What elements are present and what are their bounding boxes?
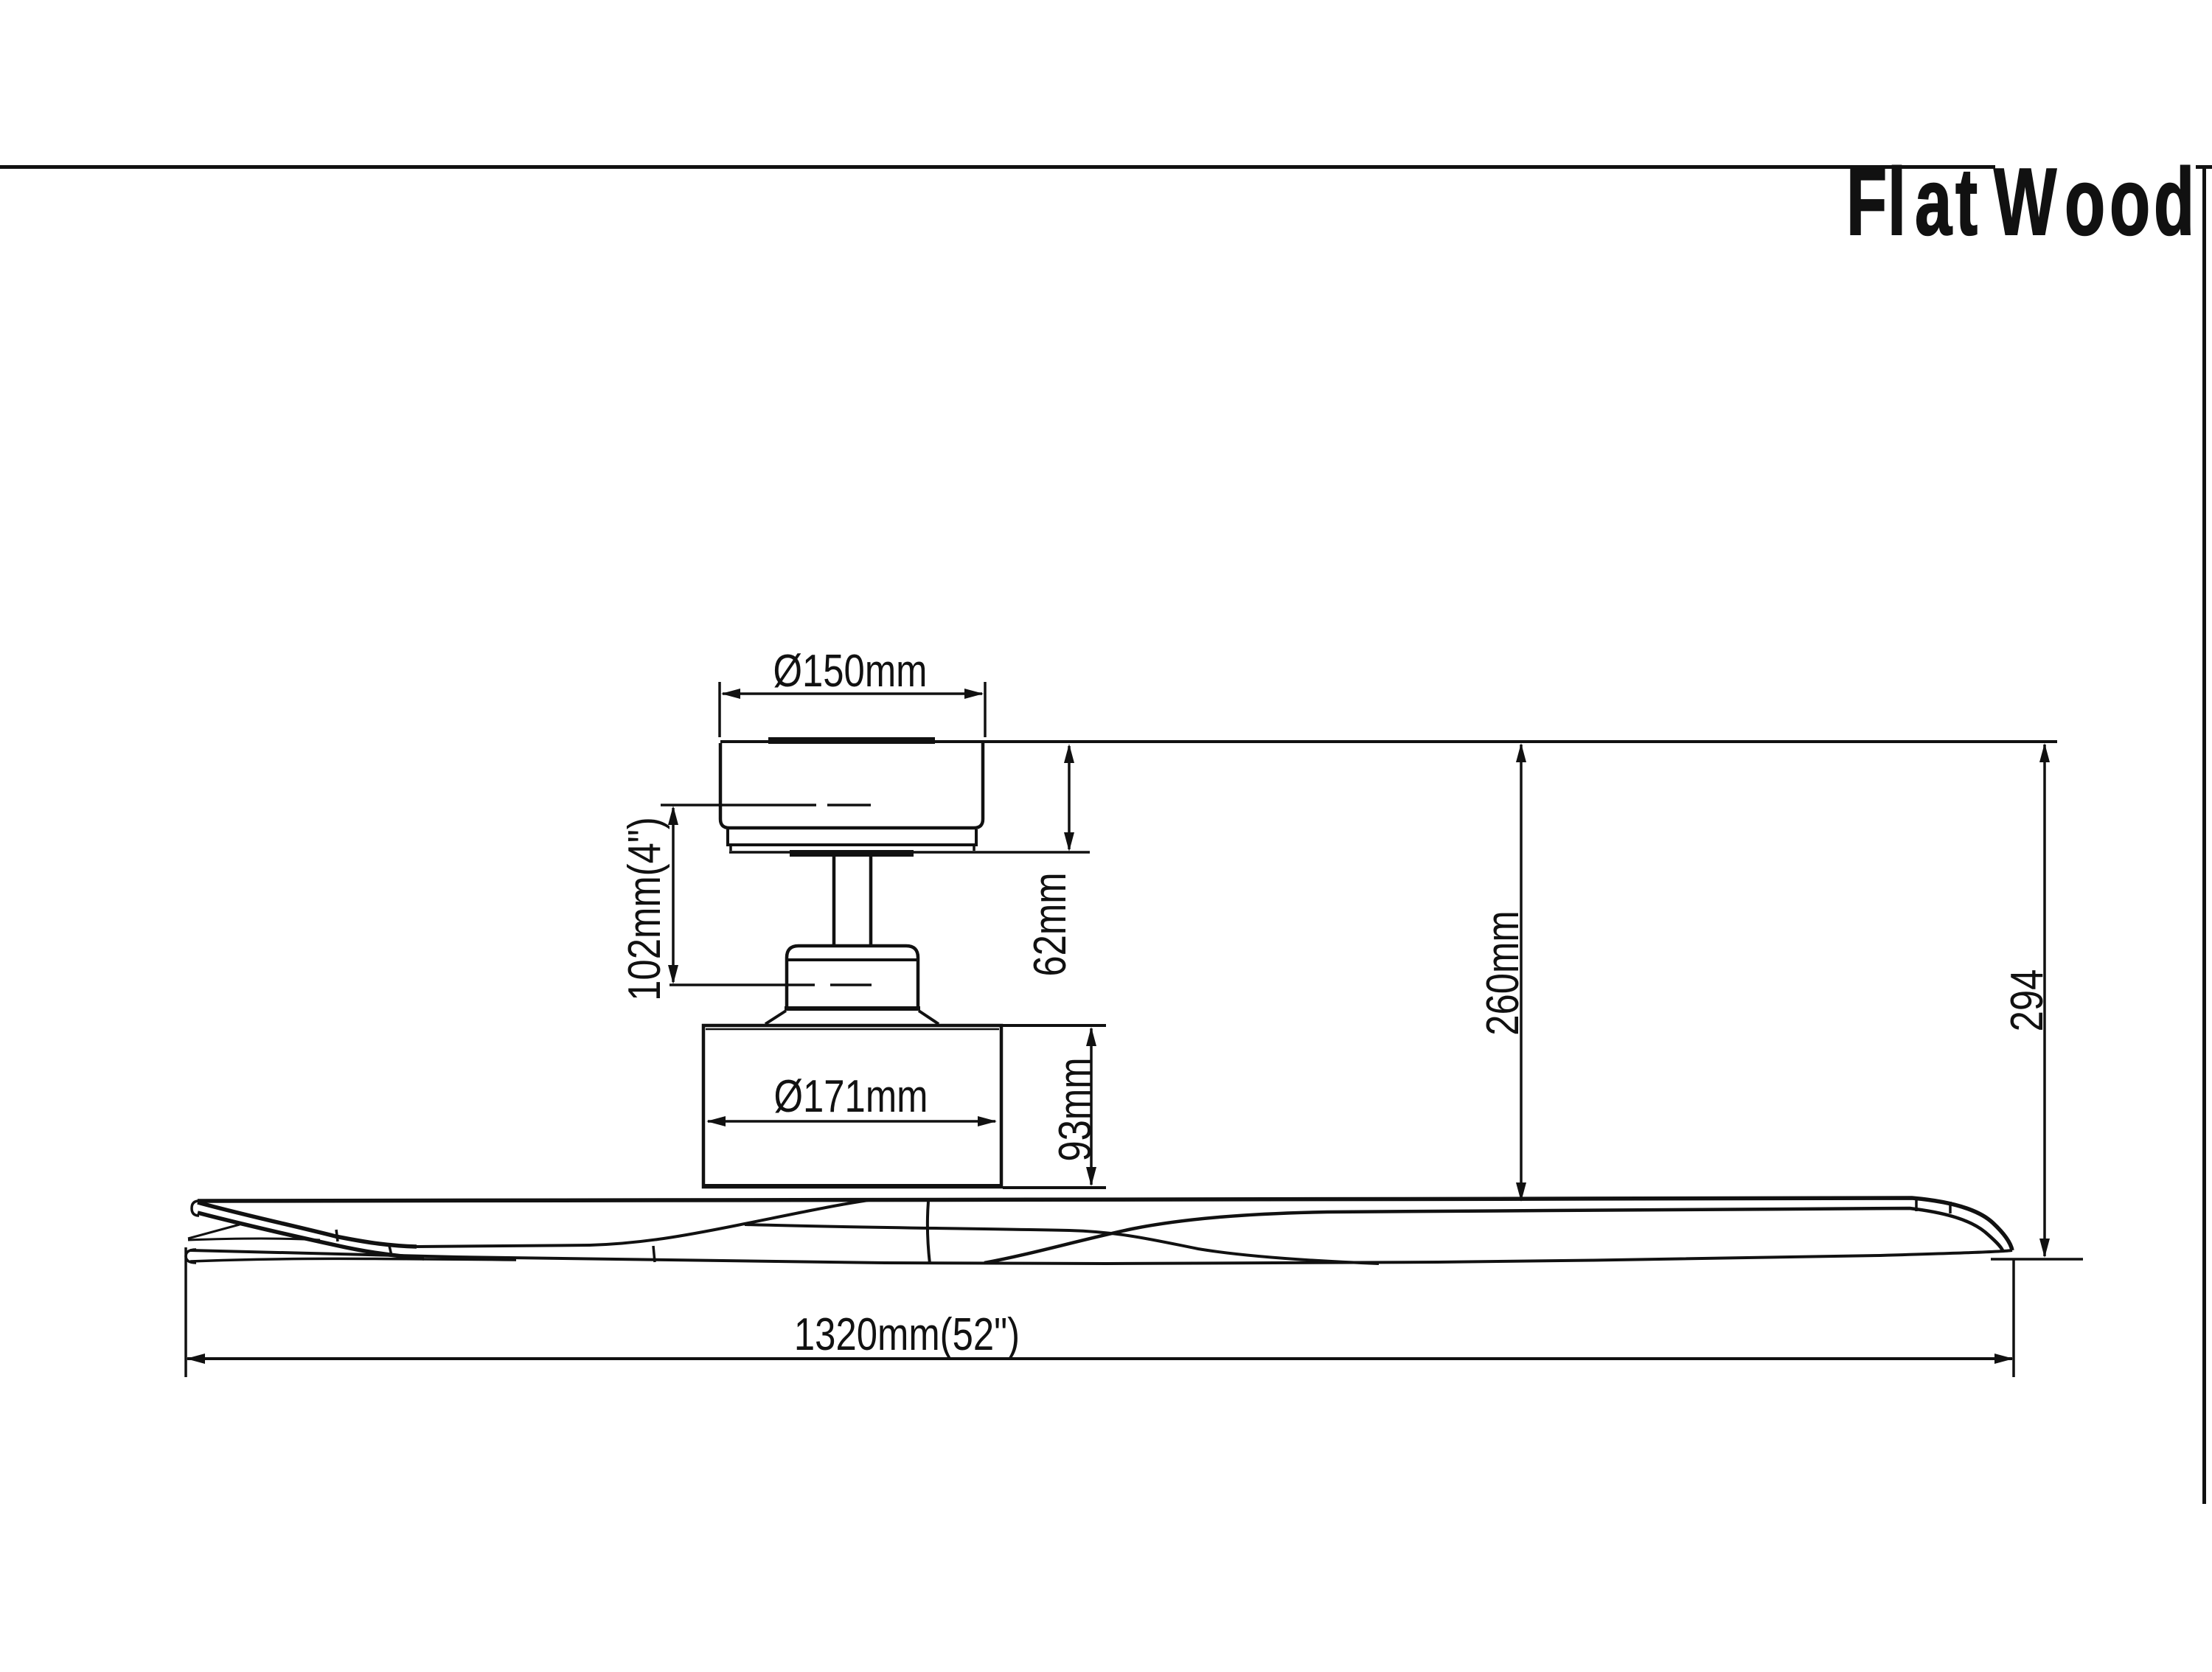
svg-text:t: t xyxy=(1955,148,1978,255)
svg-text:Ø150mm: Ø150mm xyxy=(773,646,927,697)
svg-text:93mm: 93mm xyxy=(1050,1057,1101,1161)
svg-text:o: o xyxy=(2110,148,2150,255)
svg-text:Ø171mm: Ø171mm xyxy=(773,1071,928,1122)
svg-text:a: a xyxy=(1915,148,1952,255)
svg-text:l: l xyxy=(1888,148,1906,255)
svg-text:o: o xyxy=(2065,148,2105,255)
svg-text:1320mm(52"): 1320mm(52") xyxy=(794,1309,1020,1360)
svg-text:W: W xyxy=(1994,148,2056,255)
svg-text:F: F xyxy=(1846,148,1887,255)
svg-text:102mm(4"): 102mm(4") xyxy=(619,817,670,1001)
svg-text:294: 294 xyxy=(2002,969,2053,1032)
svg-text:260mm: 260mm xyxy=(1478,910,1528,1036)
svg-text:62mm: 62mm xyxy=(1025,872,1076,976)
svg-text:d: d xyxy=(2154,148,2194,255)
